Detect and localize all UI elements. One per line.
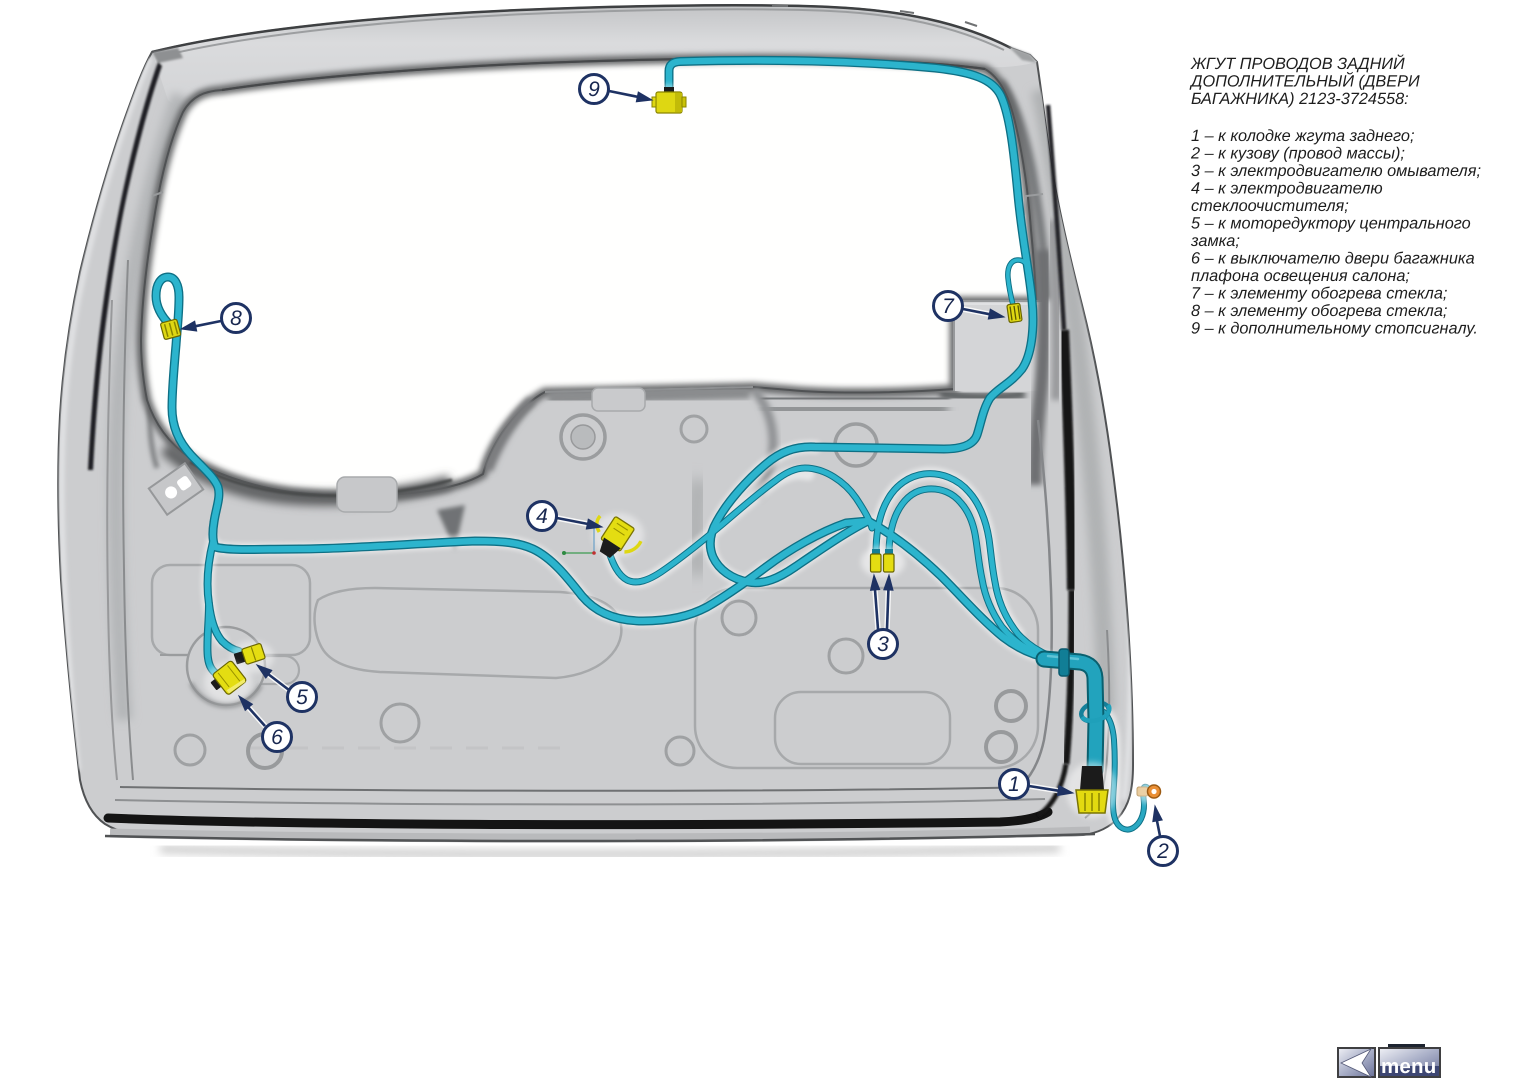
svg-text:1: 1 <box>1008 773 1020 796</box>
svg-text:стеклоочистителя;: стеклоочистителя; <box>1191 197 1349 215</box>
svg-text:плафона освещения салона;: плафона освещения салона; <box>1191 267 1410 285</box>
svg-text:4: 4 <box>536 505 548 528</box>
svg-text:9 – к дополнительному стопсигн: 9 – к дополнительному стопсигналу. <box>1191 320 1478 338</box>
svg-text:9: 9 <box>588 78 600 101</box>
svg-text:5 – к моторедуктору центрально: 5 – к моторедуктору центрального <box>1191 215 1471 233</box>
svg-text:ЖГУТ ПРОВОДОВ ЗАДНИЙ: ЖГУТ ПРОВОДОВ ЗАДНИЙ <box>1190 54 1405 73</box>
svg-text:4 – к электродвигателю: 4 – к электродвигателю <box>1191 180 1383 198</box>
svg-text:menu: menu <box>1381 1055 1436 1078</box>
svg-text:7: 7 <box>942 295 955 318</box>
svg-text:7 – к элементу обогрева стекла: 7 – к элементу обогрева стекла; <box>1191 285 1447 303</box>
svg-text:замка;: замка; <box>1190 232 1240 250</box>
svg-text:3 – к электродвигателю омывате: 3 – к электродвигателю омывателя; <box>1191 162 1481 180</box>
svg-text:2: 2 <box>1156 840 1169 863</box>
svg-text:5: 5 <box>296 686 308 709</box>
svg-text:6: 6 <box>271 726 283 749</box>
svg-text:8 – к элементу обогрева стекла: 8 – к элементу обогрева стекла; <box>1191 302 1447 320</box>
svg-text:БАГАЖНИКА) 2123-3724558:: БАГАЖНИКА) 2123-3724558: <box>1191 90 1409 108</box>
svg-text:ДОПОЛНИТЕЛЬНЫЙ (ДВЕРИ: ДОПОЛНИТЕЛЬНЫЙ (ДВЕРИ <box>1189 72 1420 91</box>
svg-text:3: 3 <box>877 633 889 656</box>
svg-text:8: 8 <box>230 307 242 330</box>
svg-text:2 – к кузову (провод массы);: 2 – к кузову (провод массы); <box>1190 145 1405 163</box>
svg-text:6 – к выключателю двери багажн: 6 – к выключателю двери багажника <box>1191 250 1475 268</box>
svg-text:1 – к колодке жгута заднего;: 1 – к колодке жгута заднего; <box>1191 127 1414 145</box>
